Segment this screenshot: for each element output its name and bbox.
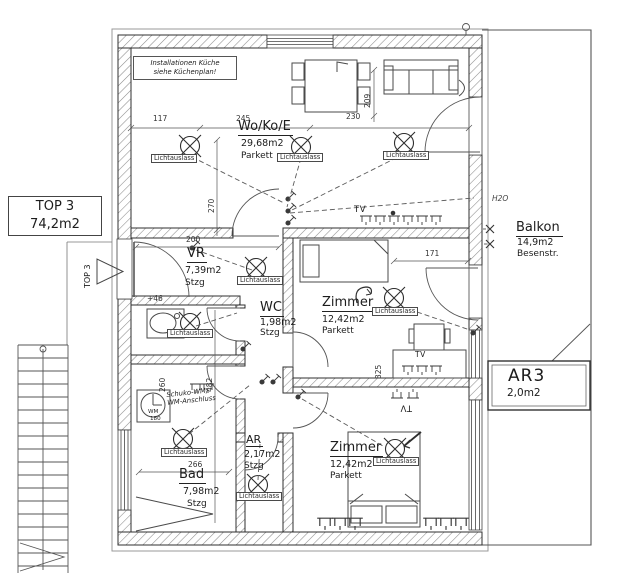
- lichtauslass-label: Lichtauslass: [383, 151, 429, 160]
- room-area-zimmer2: 12,42m2: [330, 460, 373, 470]
- room-label-wc: WC: [260, 301, 284, 317]
- pendant-lamp-icon: [337, 62, 348, 72]
- lichtauslass-label: Lichtauslass: [151, 154, 197, 163]
- light-outlet-icon: [172, 428, 194, 450]
- lichtauslass-label: Lichtauslass: [277, 153, 323, 162]
- room-area-zimmer1: 12,42m2: [322, 315, 365, 325]
- room-area-bad: 7,98m2: [183, 487, 219, 497]
- dim-top-right: 230: [346, 113, 360, 121]
- stairs-direction-arrow: [20, 543, 64, 571]
- room-label-zimmer2: Zimmer: [330, 441, 383, 457]
- tv-label-rotated: TV: [400, 402, 412, 411]
- room-floor-zimmer1: Parkett: [322, 327, 354, 337]
- zimmer1-door-arc: [293, 332, 328, 367]
- unit-area: 74,2m2: [9, 216, 101, 234]
- entrance-door-arc: [134, 242, 189, 297]
- walls: [118, 35, 482, 545]
- room-area-balkon: 14,9m2: [517, 238, 553, 248]
- unit-name: TOP 3: [9, 198, 101, 216]
- lichtauslass-label: Lichtauslass: [161, 448, 207, 457]
- dim-wc-level: +46: [147, 295, 163, 303]
- kitchen-note: Installationen Küche siehe Küchenplan!: [133, 56, 237, 80]
- dim-top-left: 117: [153, 115, 167, 123]
- room-label-bad: Bad: [179, 468, 206, 484]
- vr-living-door-arc: [232, 189, 279, 236]
- dim-bad-width: 266: [188, 461, 202, 469]
- wm-label: WM: [148, 409, 158, 415]
- room-area-ar: 2,17m2: [244, 450, 280, 460]
- tv-label: TV: [354, 206, 366, 215]
- sofa: [384, 60, 458, 94]
- lichtauslass-label: Lichtauslass: [236, 492, 282, 501]
- dim-kitchen-height: 270: [208, 199, 216, 213]
- bed-zimmer1: [300, 240, 388, 282]
- room-area-vr: 7,39m2: [185, 266, 221, 276]
- room-note-balkon: Besenstr.: [517, 250, 559, 260]
- dining-table: [292, 60, 370, 112]
- dim-bad-upper-width: 260: [159, 378, 167, 392]
- dim-zimmer1-height: 325: [375, 365, 383, 379]
- lichtauslass-label: Lichtauslass: [237, 276, 283, 285]
- room-area-wc: 1,98m2: [260, 318, 296, 328]
- dim-sofa: 209: [364, 94, 372, 108]
- staircase: [18, 345, 68, 573]
- floorplan: TOP 3 74,2m2 TOP 3 Installationen Küche …: [0, 0, 624, 576]
- radiator-icons: [317, 518, 469, 530]
- lichtauslass-label: Lichtauslass: [373, 457, 419, 466]
- floorplan-drawing: [0, 0, 624, 576]
- room-label-vr: VR: [187, 247, 207, 263]
- room-floor-wc: Stzg: [260, 329, 280, 339]
- tv-label: TV: [415, 351, 426, 359]
- lichtauslass-label: Lichtauslass: [372, 307, 418, 316]
- room-area-ar3: 2,0m2: [507, 388, 541, 400]
- entrance-marker-label: TOP 3: [84, 264, 93, 288]
- room-floor-bad: Stzg: [187, 500, 207, 510]
- room-label-balkon: Balkon: [516, 221, 563, 237]
- dim-hall-height: 482: [206, 378, 214, 392]
- room-floor-wokoe: Parkett: [241, 152, 273, 162]
- room-floor-ar: Stzg: [244, 462, 264, 472]
- room-label-ar3: AR3: [508, 367, 545, 386]
- dim-top-mid: 245: [236, 115, 250, 123]
- dim-zimmer1-width: 171: [425, 250, 439, 258]
- room-floor-zimmer2: Parkett: [330, 472, 362, 482]
- dim-wm-width: 180: [150, 416, 161, 422]
- wall-sconce-icon: [459, 80, 465, 96]
- balcony: [482, 30, 591, 545]
- building-outer-frame: [112, 29, 488, 551]
- room-label-zimmer1: Zimmer: [322, 296, 375, 312]
- unit-title-box: TOP 3 74,2m2: [8, 196, 102, 236]
- entry-landing: [67, 242, 112, 345]
- dim-vr-width: 200: [186, 236, 200, 244]
- room-floor-vr: Stzg: [185, 279, 205, 289]
- room-label-ar: AR: [246, 434, 263, 447]
- h2o-label: H2O: [492, 195, 508, 203]
- lichtauslass-label: Lichtauslass: [167, 329, 213, 338]
- light-outlet-icon: [383, 287, 405, 309]
- room-area-wokoe: 29,68m2: [241, 139, 284, 149]
